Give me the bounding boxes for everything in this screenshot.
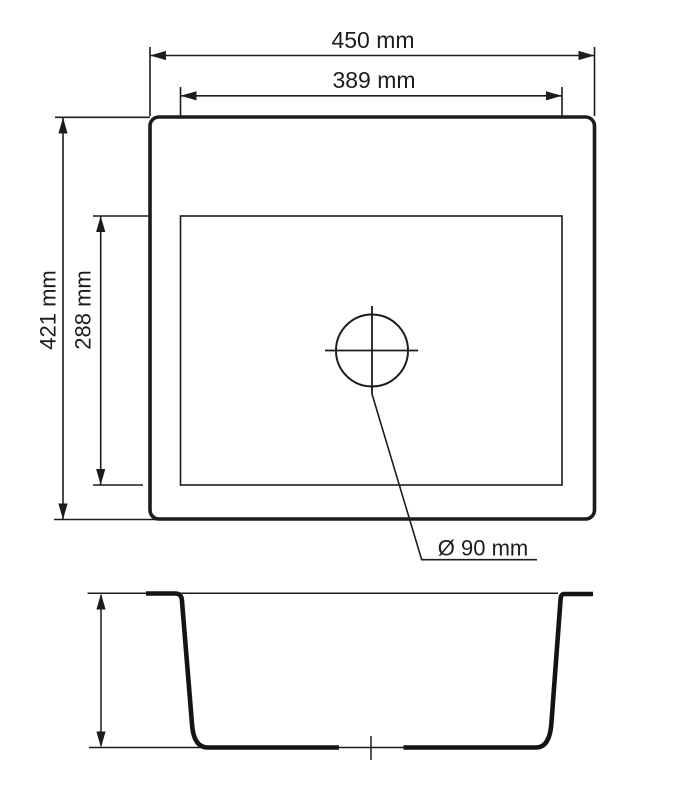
svg-text:450 mm: 450 mm <box>331 27 414 53</box>
svg-text:421 mm: 421 mm <box>36 270 61 349</box>
svg-text:Ø 90 mm: Ø 90 mm <box>438 536 528 561</box>
svg-text:288 mm: 288 mm <box>71 270 96 349</box>
svg-text:389 mm: 389 mm <box>332 67 415 93</box>
